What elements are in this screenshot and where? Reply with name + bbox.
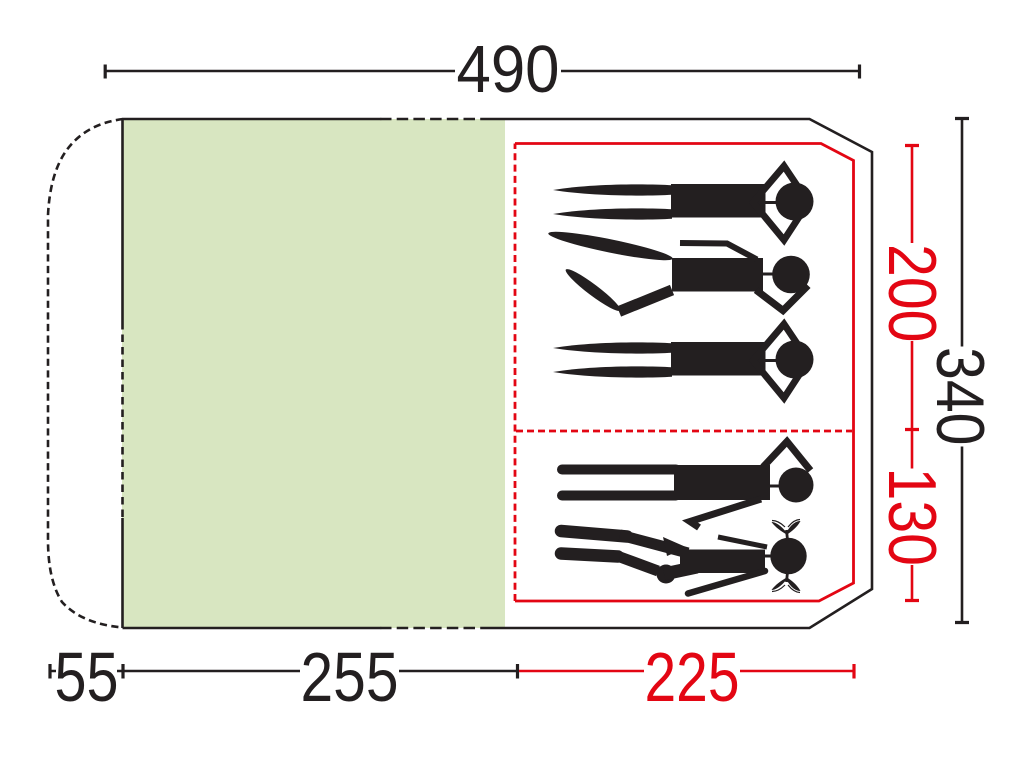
svg-text:255: 255 — [301, 638, 399, 716]
svg-text:225: 225 — [645, 638, 740, 716]
svg-text:55: 55 — [55, 638, 119, 716]
svg-text:490: 490 — [457, 32, 560, 107]
svg-text:340: 340 — [922, 347, 998, 446]
svg-text:200: 200 — [874, 244, 950, 343]
svg-text:130: 130 — [874, 468, 950, 567]
